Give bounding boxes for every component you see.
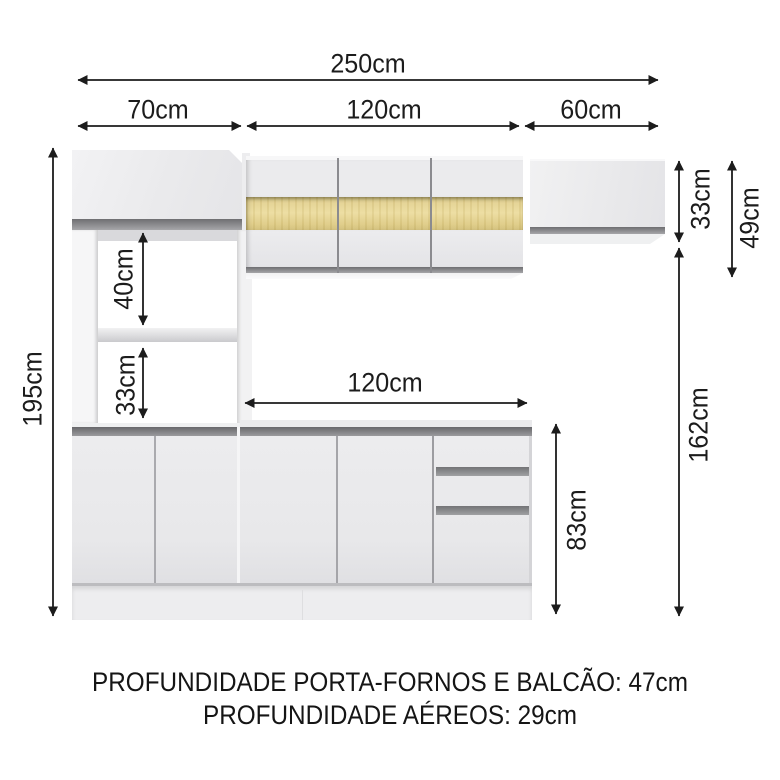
dim-label-height-195: 195cm	[20, 351, 47, 426]
dim-label-aerial-49: 49cm	[737, 187, 764, 248]
depth-note-aerials: PROFUNDIDADE AÉREOS: 29cm	[39, 700, 741, 730]
dim-label-total-width: 250cm	[330, 51, 405, 78]
dim-label-section-120: 120cm	[346, 97, 421, 124]
dim-label-section-70: 70cm	[127, 97, 188, 124]
dim-label-counter-120: 120cm	[347, 370, 422, 397]
dim-label-section-60: 60cm	[560, 97, 621, 124]
dim-label-niche-33: 33cm	[113, 354, 140, 415]
dim-label-niche-40: 40cm	[111, 248, 138, 309]
dim-label-counter-83: 83cm	[564, 489, 591, 550]
dim-label-span-162: 162cm	[686, 387, 713, 462]
diagram: 250cm 70cm 120cm 60cm 195cm 40cm 33cm 33…	[0, 0, 780, 780]
depth-note-counter: PROFUNDIDADE PORTA-FORNOS E BALCÃO: 47cm	[39, 667, 741, 697]
dim-label-aerial-33: 33cm	[688, 168, 715, 229]
